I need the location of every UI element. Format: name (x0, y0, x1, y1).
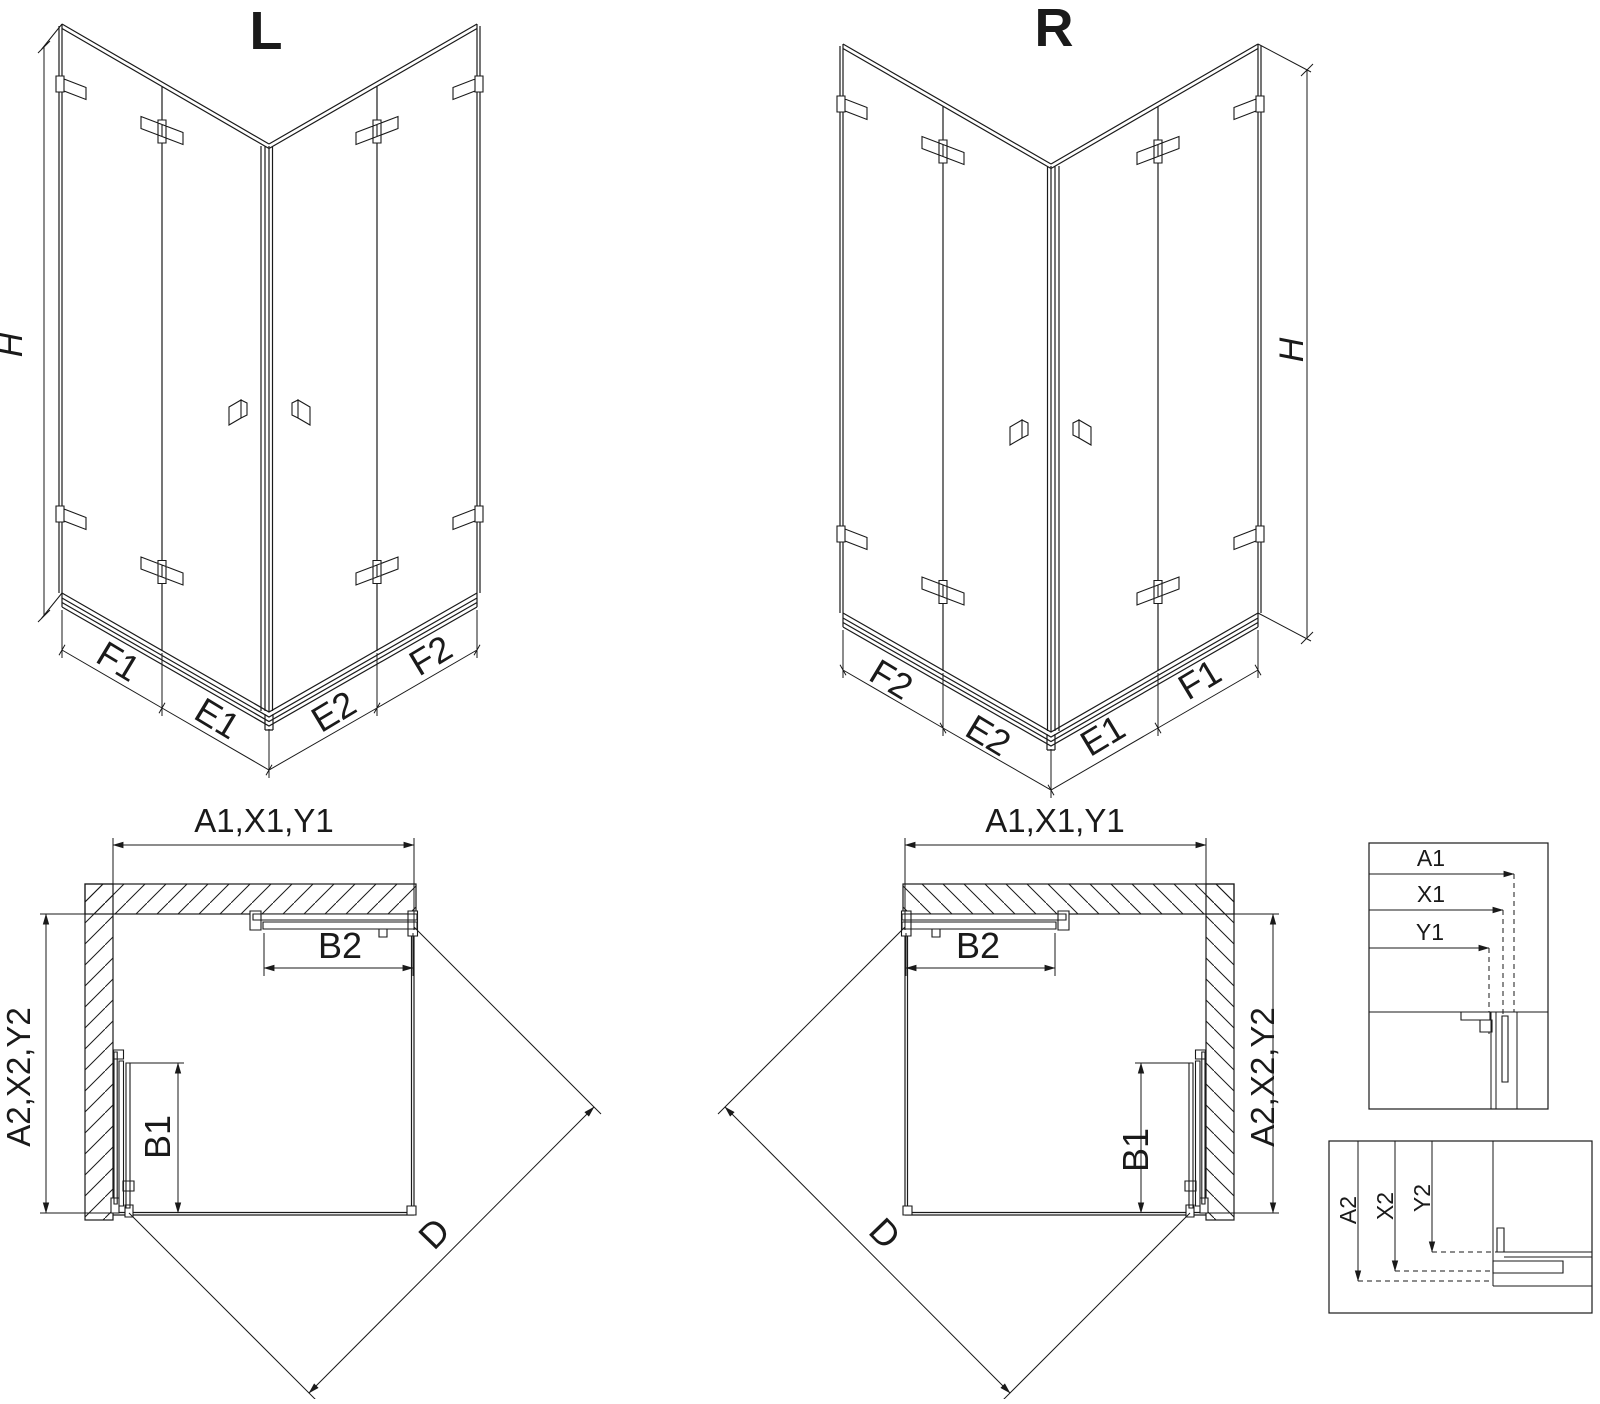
door-b1-dim-label: B1 (137, 1115, 178, 1159)
detail-y1-label: Y1 (1416, 919, 1444, 945)
height-dim-label: H (1273, 337, 1311, 362)
plan-width-dim-label: A1,X1,Y1 (194, 802, 333, 839)
plan-depth-dim-label: A2,X2,Y2 (0, 1007, 37, 1146)
door-b2-dim-label: B2 (318, 925, 362, 966)
height-dim-label: H (0, 332, 30, 357)
door-b1-dim-label: B1 (1115, 1128, 1156, 1172)
background (0, 0, 1600, 1399)
plan-width-dim-label: A1,X1,Y1 (985, 802, 1124, 839)
iso-left-title: L (250, 1, 283, 61)
plan-depth-dim-label: A2,X2,Y2 (1244, 1007, 1281, 1146)
detail-y2-label: Y2 (1409, 1184, 1435, 1212)
detail-x2-label: X2 (1372, 1192, 1398, 1220)
detail-a1-label: A1 (1417, 845, 1445, 871)
iso-right-title: R (1035, 0, 1074, 58)
shower-enclosure-dimension-diagram: L H F1 E1 E2 F2 R H F2 E2 E1 F1 A1,X1,Y1… (0, 0, 1600, 1399)
technical-drawing-page: L H F1 E1 E2 F2 R H F2 E2 E1 F1 A1,X1,Y1… (0, 0, 1600, 1399)
detail-x1-label: X1 (1417, 881, 1445, 907)
detail-a2-label: A2 (1335, 1196, 1361, 1224)
door-b2-dim-label: B2 (956, 925, 1000, 966)
